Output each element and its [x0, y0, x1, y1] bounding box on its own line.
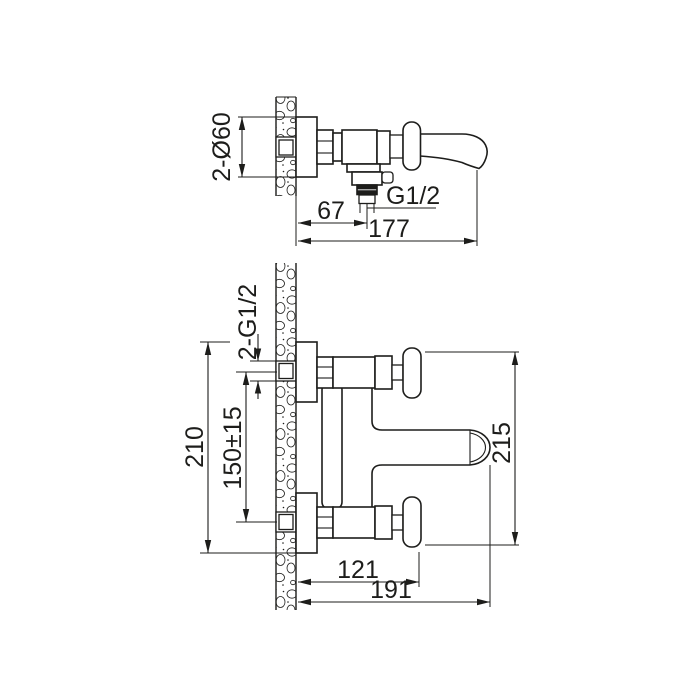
arrowhead: [239, 117, 245, 130]
arrowhead: [298, 599, 311, 605]
faucet-dimension-drawing: 2-Ø60 G1/2 67 177: [0, 0, 700, 700]
front-spout-body: [372, 388, 490, 507]
dim-label-overall-depth: 177: [368, 215, 410, 243]
arrowhead: [477, 599, 490, 605]
dim-label-outlet-offset: 67: [317, 197, 345, 225]
side-thread-band: [357, 186, 377, 190]
front-hex-adapter: [317, 507, 333, 538]
dim-label-connection-thread: 2-G1/2: [234, 284, 262, 360]
arrowhead: [354, 220, 367, 226]
front-escutcheon-plate: [296, 342, 317, 402]
dim-label-spout-reach: 191: [370, 576, 412, 604]
arrowhead: [205, 540, 211, 553]
front-dimensions: 2-G1/2 210 150±15 215: [181, 284, 519, 607]
front-valve-body: [333, 507, 375, 538]
side-diverter-top: [347, 164, 380, 172]
side-diverter-housing: [352, 172, 382, 185]
side-faucet-body: [276, 117, 487, 204]
front-valve-body: [333, 357, 375, 388]
side-handle-stem: [390, 135, 403, 158]
front-wall-hatch: [276, 263, 296, 610]
front-center-column: [322, 383, 342, 509]
front-faucet-body: [276, 342, 490, 553]
front-supply-connection-inner: [279, 515, 293, 530]
front-top-assembly: [276, 342, 421, 402]
dim-label-body-height: 215: [488, 422, 516, 464]
front-handle-stem: [392, 365, 403, 380]
side-hex-adapter: [317, 130, 333, 164]
front-hex-adapter: [317, 357, 333, 388]
side-valve-body: [342, 130, 377, 164]
front-handle-knob: [403, 348, 421, 398]
side-outlet-nipple: [359, 195, 375, 204]
front-view: 2-G1/2 210 150±15 215: [181, 263, 519, 610]
side-view: 2-Ø60 G1/2 67 177: [208, 97, 487, 246]
arrowhead: [239, 164, 245, 177]
front-handle-stem: [392, 515, 403, 530]
front-supply-connection-inner: [279, 364, 293, 379]
arrowhead: [243, 372, 249, 385]
dim-label-overall-height: 210: [181, 426, 209, 468]
side-escutcheon-plate: [296, 117, 317, 177]
side-body-neck: [333, 133, 342, 161]
arrowhead: [512, 352, 518, 365]
front-handle-base: [375, 356, 392, 389]
dim-label-outlet-thread: G1/2: [386, 182, 440, 210]
front-bottom-assembly: [276, 493, 421, 553]
dim-label-escutcheon-diameter: 2-Ø60: [208, 112, 236, 181]
front-spout-cap-inner-arc: [470, 433, 486, 462]
front-wall-section: [276, 263, 296, 610]
side-spout: [420, 134, 487, 169]
side-thread-band: [357, 191, 377, 195]
side-handle-knob: [403, 122, 421, 170]
arrowhead: [464, 238, 477, 244]
side-handle-base: [377, 131, 390, 164]
arrowhead: [205, 342, 211, 355]
arrowhead: [243, 509, 249, 522]
front-handle-base: [375, 506, 392, 539]
front-handle-knob: [403, 497, 421, 547]
side-supply-connection-inner: [279, 140, 293, 155]
arrowhead: [512, 532, 518, 545]
arrowhead: [255, 381, 261, 394]
dim-label-connection-spacing: 150±15: [219, 406, 247, 489]
technical-drawing-page: 2-Ø60 G1/2 67 177: [0, 0, 700, 700]
arrowhead: [298, 579, 311, 585]
front-escutcheon-plate: [296, 493, 317, 553]
arrowhead: [298, 238, 311, 244]
arrowhead: [298, 220, 311, 226]
